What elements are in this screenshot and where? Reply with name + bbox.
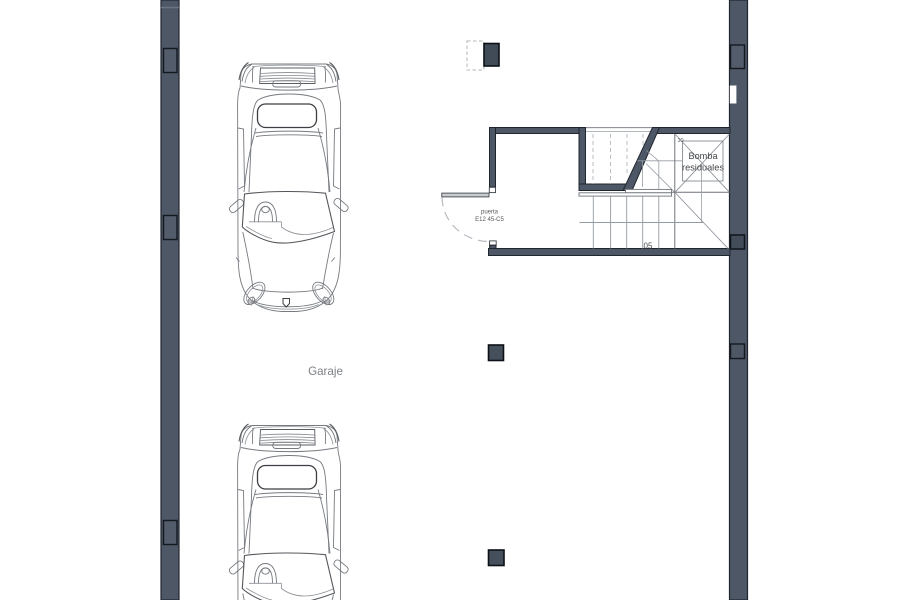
svg-text:residuales: residuales [682, 163, 724, 173]
svg-text:Bomba: Bomba [688, 151, 718, 161]
svg-text:Garaje: Garaje [308, 365, 343, 378]
svg-text:E12 45-C5: E12 45-C5 [475, 217, 504, 223]
svg-text:05: 05 [644, 242, 653, 251]
svg-text:10: 10 [678, 138, 684, 144]
svg-text:puerta: puerta [481, 210, 499, 216]
